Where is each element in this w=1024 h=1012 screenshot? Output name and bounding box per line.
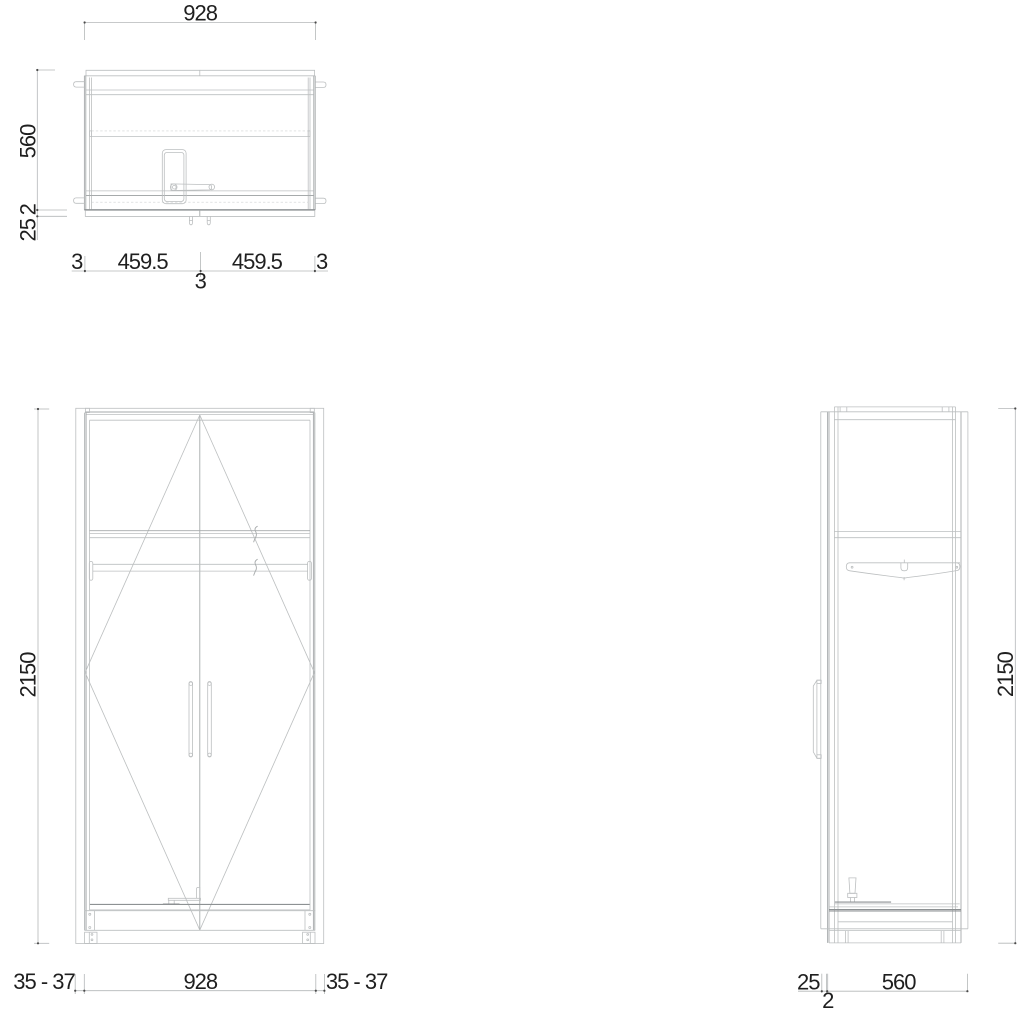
svg-text:35 - 37: 35 - 37: [13, 969, 75, 994]
svg-text:25: 25: [16, 218, 41, 241]
svg-text:459.5: 459.5: [232, 249, 283, 274]
svg-text:3: 3: [71, 249, 83, 274]
svg-text:928: 928: [183, 969, 217, 994]
svg-text:459.5: 459.5: [118, 249, 169, 274]
svg-text:928: 928: [183, 1, 217, 26]
svg-text:2150: 2150: [15, 652, 40, 698]
svg-text:2150: 2150: [993, 651, 1018, 697]
svg-text:2: 2: [822, 988, 834, 1012]
svg-text:2: 2: [16, 203, 41, 215]
svg-text:560: 560: [16, 124, 41, 158]
svg-text:3: 3: [195, 269, 207, 294]
svg-text:3: 3: [316, 249, 328, 274]
svg-text:35 - 37: 35 - 37: [326, 969, 388, 994]
svg-text:25: 25: [797, 969, 820, 994]
svg-text:560: 560: [882, 969, 916, 994]
